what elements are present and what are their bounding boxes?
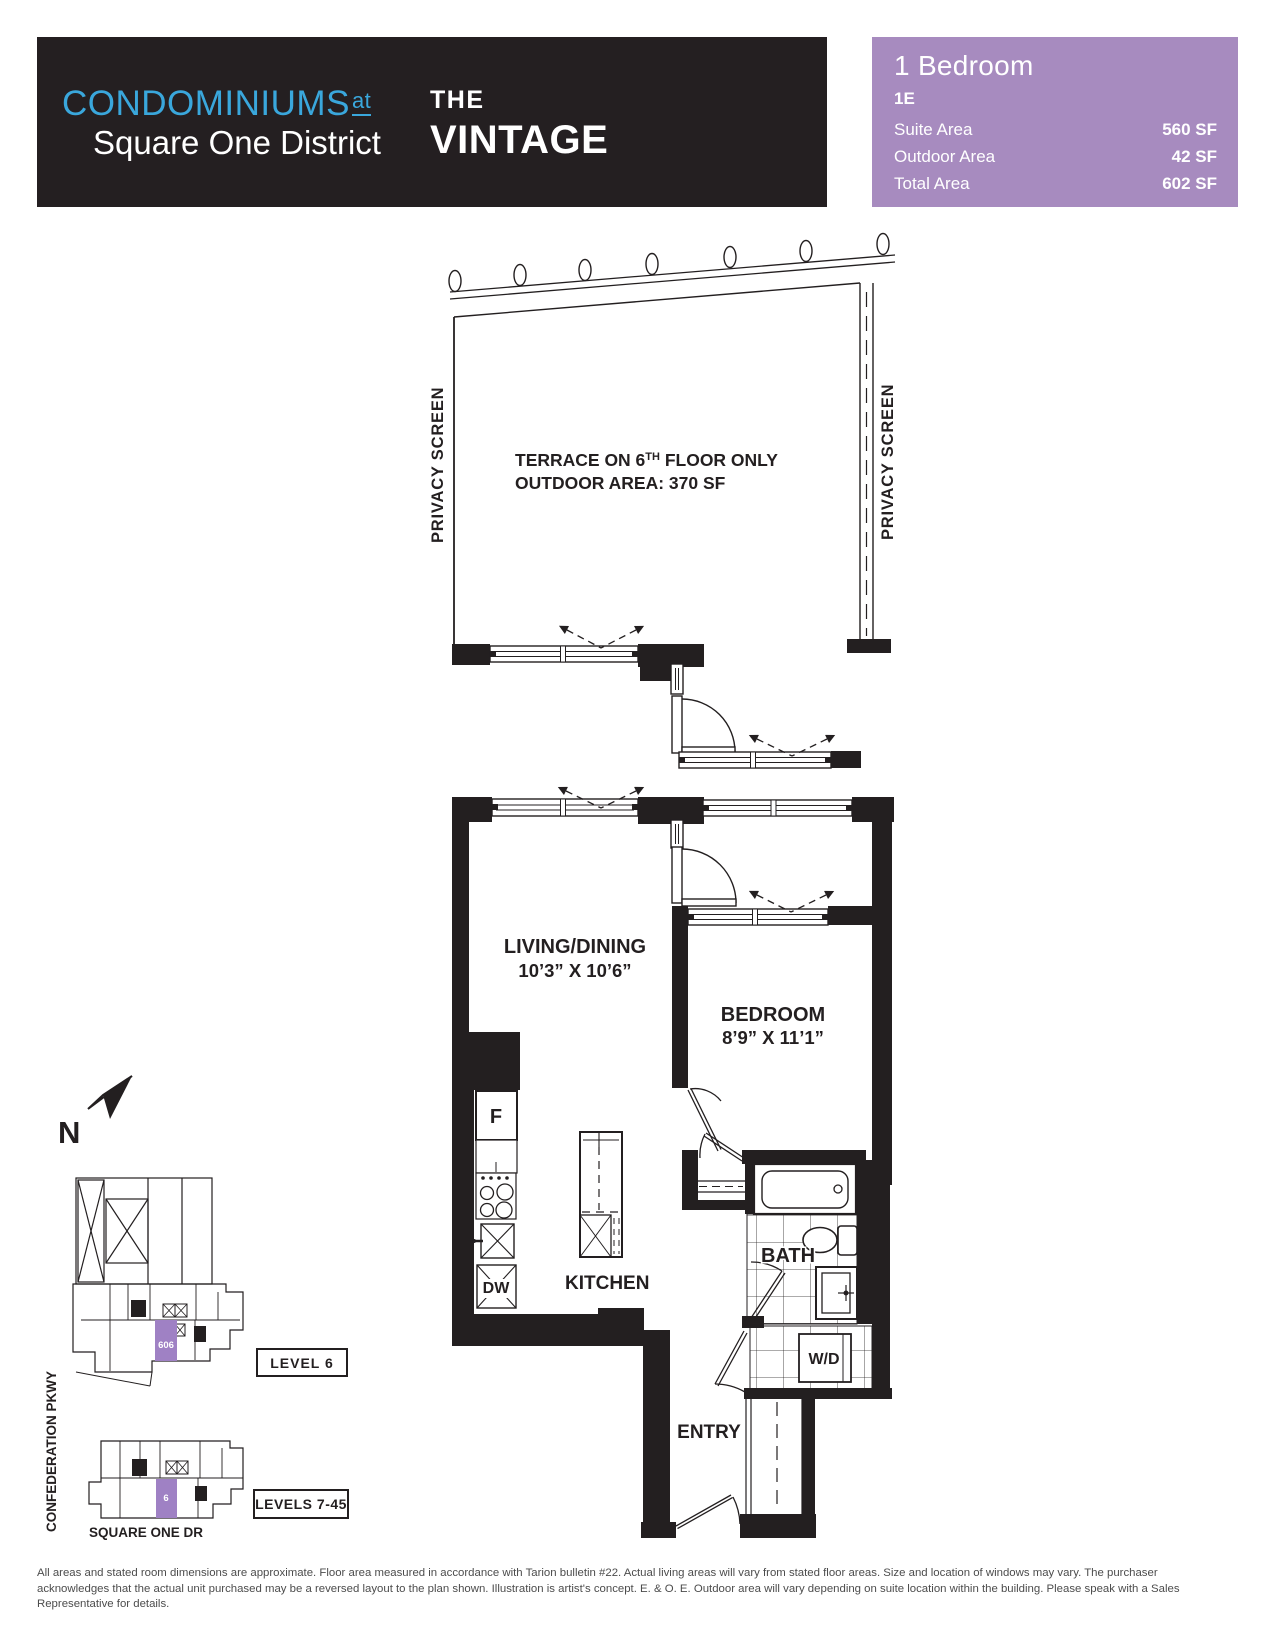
privacy-screen-left-label: PRIVACY SCREEN	[429, 387, 447, 543]
bedroom-door	[688, 1089, 721, 1152]
keyplan-unit-6-label: 6	[163, 1493, 168, 1504]
street-square-one: SQUARE ONE DR	[89, 1525, 203, 1540]
kitchen-label: KITCHEN	[565, 1273, 649, 1294]
vestibule-door	[700, 1133, 744, 1161]
floorplan-page: CONDOMINIUMSat Square One District THE V…	[0, 0, 1275, 1650]
dishwasher-label: DW	[483, 1280, 511, 1297]
entry-closet	[746, 1398, 802, 1516]
laundry-door	[715, 1331, 747, 1392]
floor-plan-drawing: PRIVACY SCREEN PRIVACY SCREEN TERRACE ON…	[0, 0, 1275, 1650]
disclaimer-line2: acknowledges that the actual unit purcha…	[37, 1582, 1247, 1598]
stove	[476, 1173, 516, 1219]
entry-label: ENTRY	[677, 1422, 741, 1443]
fridge-label: F	[490, 1106, 502, 1128]
bedroom-label: BEDROOM	[721, 1004, 825, 1026]
terrace-door	[671, 664, 735, 754]
keyplan-levels7-45: 6	[89, 1441, 243, 1518]
terrace-note-sup: TH	[645, 451, 660, 463]
bath-label: BATH	[761, 1245, 815, 1267]
north-label: N	[58, 1115, 80, 1150]
living-label: LIVING/DINING	[504, 936, 646, 958]
privacy-screen-right-label: PRIVACY SCREEN	[879, 384, 897, 540]
street-confederation: CONFEDERATION PKWY	[44, 1371, 59, 1532]
counter	[476, 1140, 517, 1173]
suite-entry-door	[676, 1495, 740, 1529]
window-terrace-east	[679, 752, 831, 768]
balcony-railing	[703, 800, 852, 816]
terrace-note-pre: TERRACE ON 6	[515, 450, 646, 470]
terrace-note-line1: TERRACE ON 6TH FLOOR ONLY	[515, 450, 778, 470]
bathtub	[754, 1164, 856, 1214]
kitchen-island	[580, 1132, 622, 1257]
terrace-note-post: FLOOR ONLY	[660, 450, 778, 470]
terrace-note-line2: OUTDOOR AREA: 370 SF	[515, 473, 726, 493]
level6-tag: LEVEL 6	[257, 1349, 347, 1376]
bedroom-closet	[697, 1181, 745, 1192]
disclaimer-line1: All areas and stated room dimensions are…	[37, 1566, 1247, 1582]
terrace	[449, 234, 895, 654]
north-arrow-icon: N	[58, 1076, 132, 1150]
kitchen-sink	[472, 1224, 514, 1258]
vanity-sink	[816, 1267, 857, 1319]
window-living	[492, 799, 638, 816]
window-terrace	[490, 646, 638, 662]
living-dims: 10’3” X 10’6”	[518, 960, 631, 981]
terrace-lower-wall	[452, 630, 861, 768]
levels7-45-tag: LEVELS 7-45	[254, 1490, 348, 1518]
keyplan-level6: 606	[73, 1178, 243, 1386]
keyplan-unit-606-label: 606	[158, 1340, 174, 1351]
casement-indicator	[567, 630, 636, 648]
disclaimer-line3: Representative for details.	[37, 1597, 1247, 1613]
levels7-45-label: LEVELS 7-45	[255, 1496, 347, 1512]
window-bedroom	[688, 909, 828, 925]
terrace-railing	[449, 234, 895, 318]
disclaimer: All areas and stated room dimensions are…	[37, 1566, 1247, 1613]
level6-label: LEVEL 6	[270, 1355, 334, 1371]
washer-dryer-label: W/D	[808, 1351, 839, 1368]
bedroom-dims: 8’9” X 11’1”	[722, 1027, 824, 1048]
balcony-door	[671, 820, 736, 906]
